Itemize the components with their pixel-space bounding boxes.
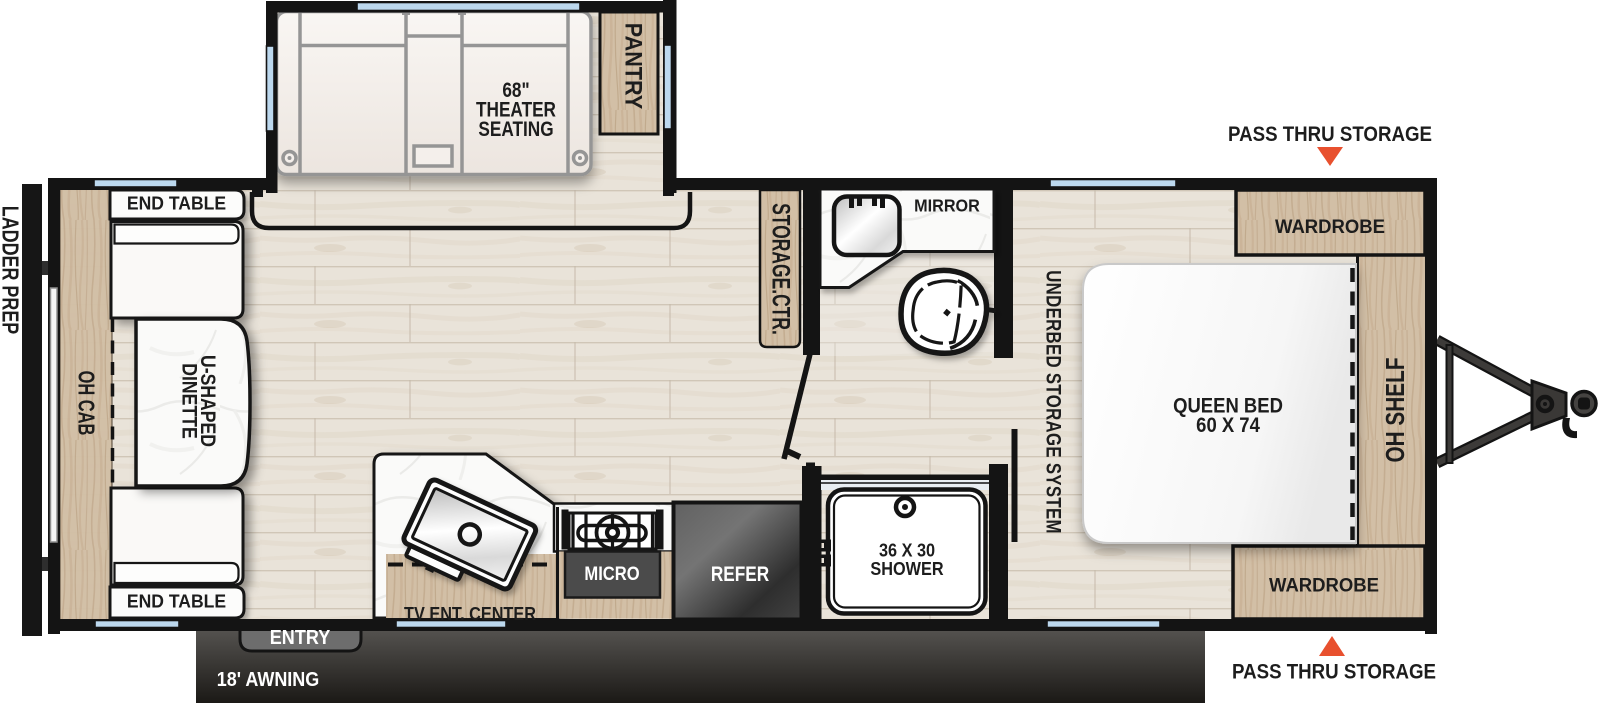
svg-text:REFER: REFER (711, 564, 769, 587)
svg-text:UNDERBED STORAGE SYSTEM: UNDERBED STORAGE SYSTEM (1041, 270, 1064, 534)
svg-text:END TABLE: END TABLE (127, 591, 226, 612)
svg-text:TV ENT. CENTER: TV ENT. CENTER (404, 603, 536, 624)
svg-text:WARDROBE: WARDROBE (1269, 575, 1379, 597)
svg-text:STORAGE.CTR.: STORAGE.CTR. (767, 203, 796, 335)
svg-text:WARDROBE: WARDROBE (1275, 217, 1385, 239)
svg-text:END TABLE: END TABLE (127, 193, 226, 214)
svg-text:PANTRY: PANTRY (620, 23, 647, 109)
svg-text:U-SHAPEDDINETTE: U-SHAPEDDINETTE (177, 355, 219, 447)
svg-text:PASS THRU STORAGE: PASS THRU STORAGE (1228, 123, 1432, 146)
svg-text:OH SHELF: OH SHELF (1381, 357, 1410, 462)
svg-text:ENTRY: ENTRY (270, 627, 331, 649)
svg-text:OH CAB: OH CAB (73, 371, 98, 436)
svg-text:PASS THRU STORAGE: PASS THRU STORAGE (1232, 660, 1436, 683)
svg-text:MIRROR: MIRROR (914, 196, 980, 216)
svg-text:MICRO: MICRO (584, 563, 639, 585)
svg-text:LADDER PREP: LADDER PREP (0, 206, 23, 335)
svg-text:36 X 30SHOWER: 36 X 30SHOWER (870, 540, 944, 580)
svg-text:18' AWNING: 18' AWNING (217, 669, 320, 691)
